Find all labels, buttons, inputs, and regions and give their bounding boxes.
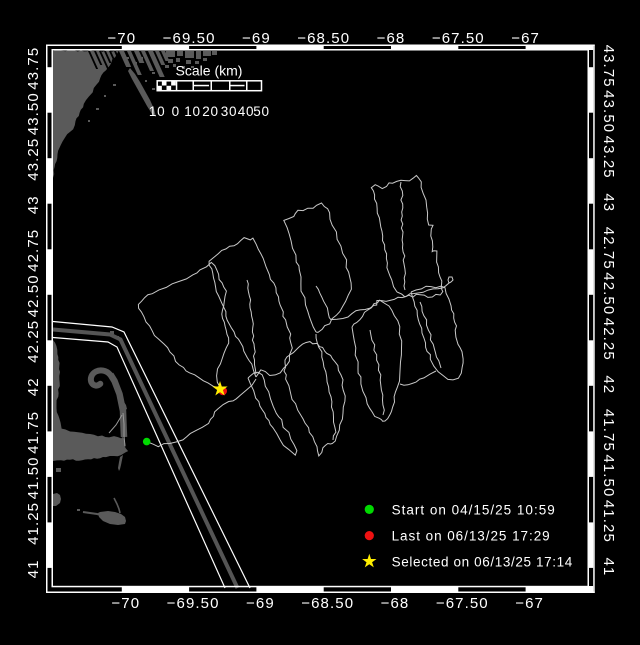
svg-text:42.75: 42.75: [25, 229, 42, 272]
svg-text:43.25: 43.25: [25, 138, 42, 181]
svg-text:−67.50: −67.50: [436, 595, 489, 612]
svg-text:20: 20: [202, 104, 219, 119]
svg-text:42.75: 42.75: [600, 227, 617, 270]
svg-text:43.75: 43.75: [25, 47, 42, 90]
svg-text:43.50: 43.50: [25, 92, 42, 135]
svg-text:41.25: 41.25: [25, 502, 42, 545]
svg-text:−69.50: −69.50: [167, 595, 220, 612]
svg-text:42: 42: [600, 375, 617, 394]
svg-text:−68: −68: [381, 595, 410, 612]
svg-text:−70: −70: [107, 30, 136, 47]
svg-text:Selected on 06/13/25 17:14: Selected on 06/13/25 17:14: [392, 555, 573, 570]
svg-text:42: 42: [25, 377, 42, 396]
svg-text:−68: −68: [377, 30, 406, 47]
svg-text:30: 30: [221, 104, 238, 119]
svg-text:42.25: 42.25: [600, 318, 617, 361]
svg-text:43: 43: [25, 195, 42, 214]
svg-text:43.75: 43.75: [600, 45, 617, 88]
svg-text:50: 50: [253, 104, 270, 119]
svg-text:40: 40: [238, 104, 255, 119]
svg-text:41.75: 41.75: [600, 409, 617, 452]
svg-text:43: 43: [600, 193, 617, 212]
svg-text:−69: −69: [246, 595, 275, 612]
svg-text:−68.50: −68.50: [301, 595, 354, 612]
svg-text:41: 41: [600, 557, 617, 576]
svg-text:42.50: 42.50: [600, 272, 617, 315]
svg-text:Start on 04/15/25 10:59: Start on 04/15/25 10:59: [392, 503, 556, 518]
svg-text:−67: −67: [511, 30, 540, 47]
svg-text:0: 0: [172, 104, 180, 119]
svg-text:42.50: 42.50: [25, 274, 42, 317]
svg-text:−67.50: −67.50: [432, 30, 485, 47]
svg-text:−70: −70: [111, 595, 140, 612]
svg-text:41.25: 41.25: [600, 500, 617, 543]
svg-text:Scale (km): Scale (km): [176, 63, 243, 79]
svg-text:41.75: 41.75: [25, 411, 42, 454]
svg-text:Last on 06/13/25 17:29: Last on 06/13/25 17:29: [392, 529, 551, 544]
svg-text:−67: −67: [515, 595, 544, 612]
svg-text:−68.50: −68.50: [297, 30, 350, 47]
svg-text:41: 41: [25, 559, 42, 578]
svg-text:43.25: 43.25: [600, 136, 617, 179]
svg-text:−69.50: −69.50: [163, 30, 216, 47]
svg-text:−69: −69: [242, 30, 271, 47]
svg-text:10: 10: [149, 104, 166, 119]
svg-text:43.50: 43.50: [600, 90, 617, 133]
svg-text:41.50: 41.50: [600, 454, 617, 497]
svg-text:10: 10: [184, 104, 201, 119]
svg-text:41.50: 41.50: [25, 456, 42, 499]
svg-text:42.25: 42.25: [25, 320, 42, 363]
